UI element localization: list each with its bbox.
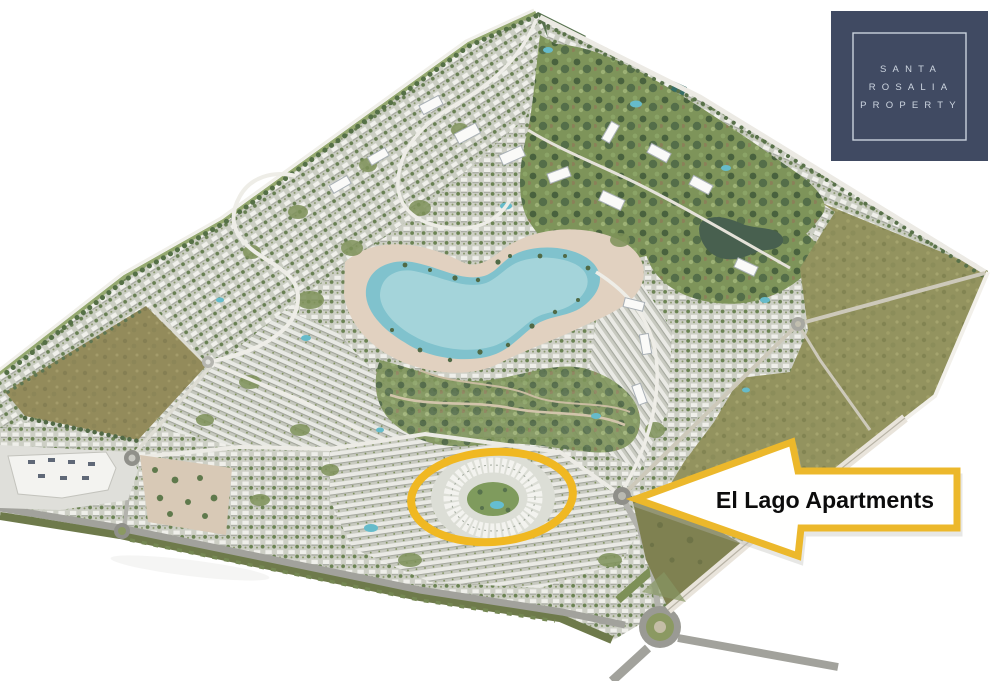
svg-text:El Lago Apartments: El Lago Apartments — [716, 487, 934, 513]
svg-text:SANTA: SANTA — [880, 64, 942, 75]
svg-text:ROSALIA: ROSALIA — [869, 82, 954, 93]
svg-text:PROPERTY: PROPERTY — [860, 100, 962, 111]
